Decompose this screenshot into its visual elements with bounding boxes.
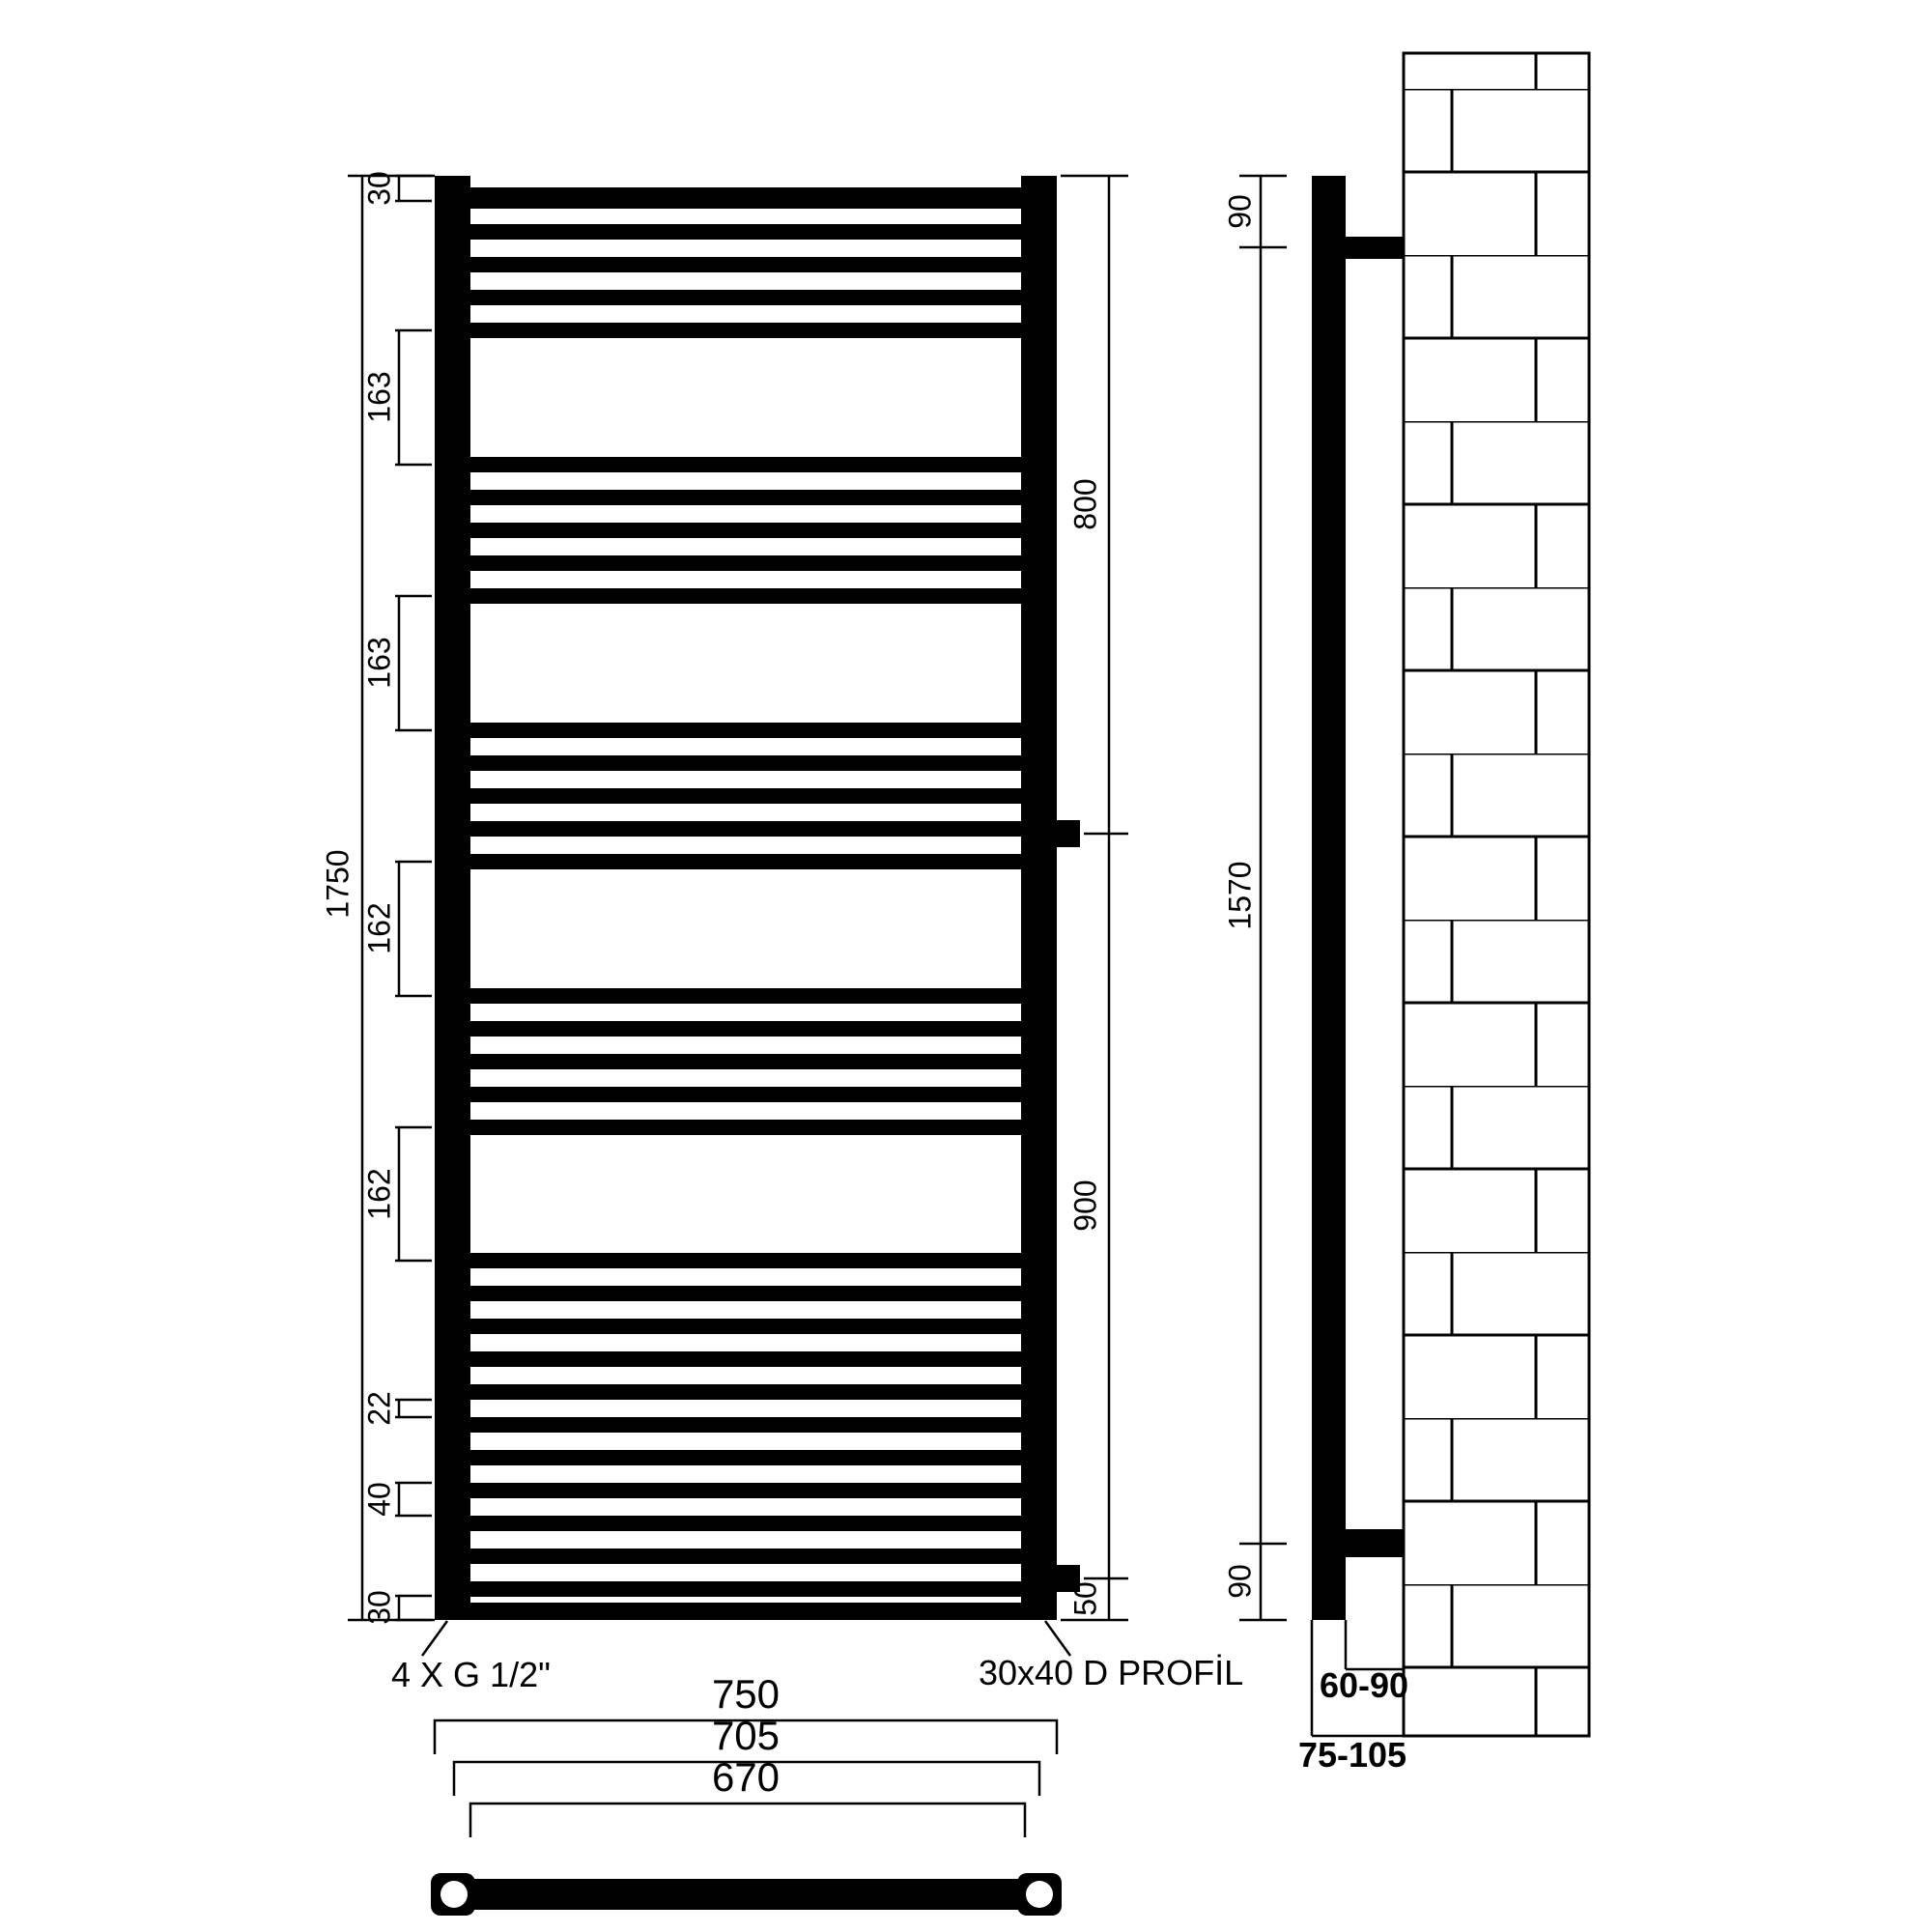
right-dim-line xyxy=(1061,176,1128,1620)
profile-label: 30x40 D PROFİL xyxy=(979,1653,1243,1692)
side-inlet-stub xyxy=(1055,820,1080,847)
left-dimensions: 1750 30 163 163 162 162 22 40 30 xyxy=(320,171,435,1625)
right-dimensions: 800 900 50 xyxy=(1061,176,1128,1620)
rung-group-2 xyxy=(469,457,1022,604)
side-to-bottom-inlet-label: 900 xyxy=(1067,1179,1102,1231)
side-view: 90 1570 90 60-90 75-105 xyxy=(1222,53,1589,1775)
top-to-side-inlet-label: 800 xyxy=(1067,478,1102,529)
rung xyxy=(469,224,1022,240)
rung xyxy=(469,1603,1022,1620)
rung xyxy=(469,1417,1022,1433)
gap3-label: 162 xyxy=(361,902,396,953)
rung xyxy=(469,490,1022,505)
rung xyxy=(469,1054,1022,1069)
rung xyxy=(469,1021,1022,1037)
inner-width-dim-line xyxy=(470,1804,1025,1837)
top-bracket-offset-label: 90 xyxy=(1222,194,1257,229)
clearance-back-dim xyxy=(1346,1620,1404,1669)
bottom-bracket-offset-label: 90 xyxy=(1222,1564,1257,1599)
rung-pitch-label: 40 xyxy=(361,1482,396,1517)
top-rail-label: 30 xyxy=(361,171,396,206)
gap2-label: 163 xyxy=(361,637,396,688)
rung xyxy=(469,755,1022,771)
rung xyxy=(469,1483,1022,1498)
rung xyxy=(469,1384,1022,1400)
left-pipe-bore xyxy=(440,1881,468,1908)
rung xyxy=(469,290,1022,305)
rung-group-4 xyxy=(469,988,1022,1135)
rung xyxy=(469,1319,1022,1334)
cross-section xyxy=(431,1873,1062,1916)
bottom-rail-dim xyxy=(395,1596,432,1620)
rung-pitch-dim xyxy=(395,1483,432,1516)
callouts: 4 X G 1/2" 30x40 D PROFİL xyxy=(391,1621,1243,1694)
rung xyxy=(469,1120,1022,1135)
rung xyxy=(469,588,1022,604)
profile-leader-line xyxy=(1045,1621,1070,1656)
right-post xyxy=(1021,176,1057,1620)
rung xyxy=(469,257,1022,272)
clearance-back-label: 60-90 xyxy=(1320,1665,1408,1705)
rung xyxy=(469,821,1022,837)
rung xyxy=(469,1087,1022,1102)
rung-group-top xyxy=(469,187,1022,338)
connections-label: 4 X G 1/2" xyxy=(391,1655,551,1694)
gap4-dim xyxy=(395,1127,432,1261)
cross-section-tube xyxy=(471,1879,1022,1910)
rung xyxy=(469,988,1022,1004)
bottom-wall-bracket xyxy=(1346,1529,1404,1557)
rung-group-3 xyxy=(469,723,1022,869)
rung xyxy=(469,854,1022,869)
rung xyxy=(469,457,1022,472)
rung-gap-label: 22 xyxy=(361,1391,396,1426)
overall-width-label: 750 xyxy=(712,1671,780,1717)
rung-group-bottom xyxy=(469,1253,1022,1620)
top-rail-dim xyxy=(395,176,432,201)
bottom-inlet-offset-label: 50 xyxy=(1067,1581,1102,1616)
left-post xyxy=(435,176,470,1620)
front-view xyxy=(435,176,1080,1620)
clearance-front-label: 75-105 xyxy=(1298,1735,1406,1775)
pipe-centers-label: 705 xyxy=(712,1713,780,1758)
rung xyxy=(469,1253,1022,1268)
technical-drawing: 1750 30 163 163 162 162 22 40 30 800 900… xyxy=(0,0,1932,1932)
gap1-label: 163 xyxy=(361,371,396,422)
overall-height-label: 1750 xyxy=(320,849,355,918)
rung xyxy=(469,788,1022,804)
rung xyxy=(469,1548,1022,1564)
inner-width-label: 670 xyxy=(712,1754,780,1800)
rung xyxy=(469,1516,1022,1531)
rung xyxy=(469,723,1022,738)
rung xyxy=(469,187,1022,209)
rung xyxy=(469,1351,1022,1367)
gap2-dim xyxy=(395,596,432,730)
gap3-dim xyxy=(395,862,432,996)
connections-leader-line xyxy=(422,1621,447,1656)
bracket-span-label: 1570 xyxy=(1222,861,1257,929)
rung xyxy=(469,523,1022,538)
rung xyxy=(469,1581,1022,1597)
rung xyxy=(469,555,1022,571)
bottom-rail-label: 30 xyxy=(361,1590,396,1625)
right-pipe-bore xyxy=(1026,1881,1053,1908)
top-wall-bracket xyxy=(1346,237,1404,259)
rung xyxy=(469,323,1022,338)
width-dimensions: 750 705 670 xyxy=(435,1671,1057,1837)
gap1-dim xyxy=(395,330,432,465)
rung xyxy=(469,1450,1022,1465)
brick-wall xyxy=(1404,53,1589,1736)
rung xyxy=(469,1286,1022,1301)
gap4-label: 162 xyxy=(361,1168,396,1219)
rung-gap-dim xyxy=(395,1400,432,1417)
radiator-side-profile xyxy=(1312,176,1346,1620)
